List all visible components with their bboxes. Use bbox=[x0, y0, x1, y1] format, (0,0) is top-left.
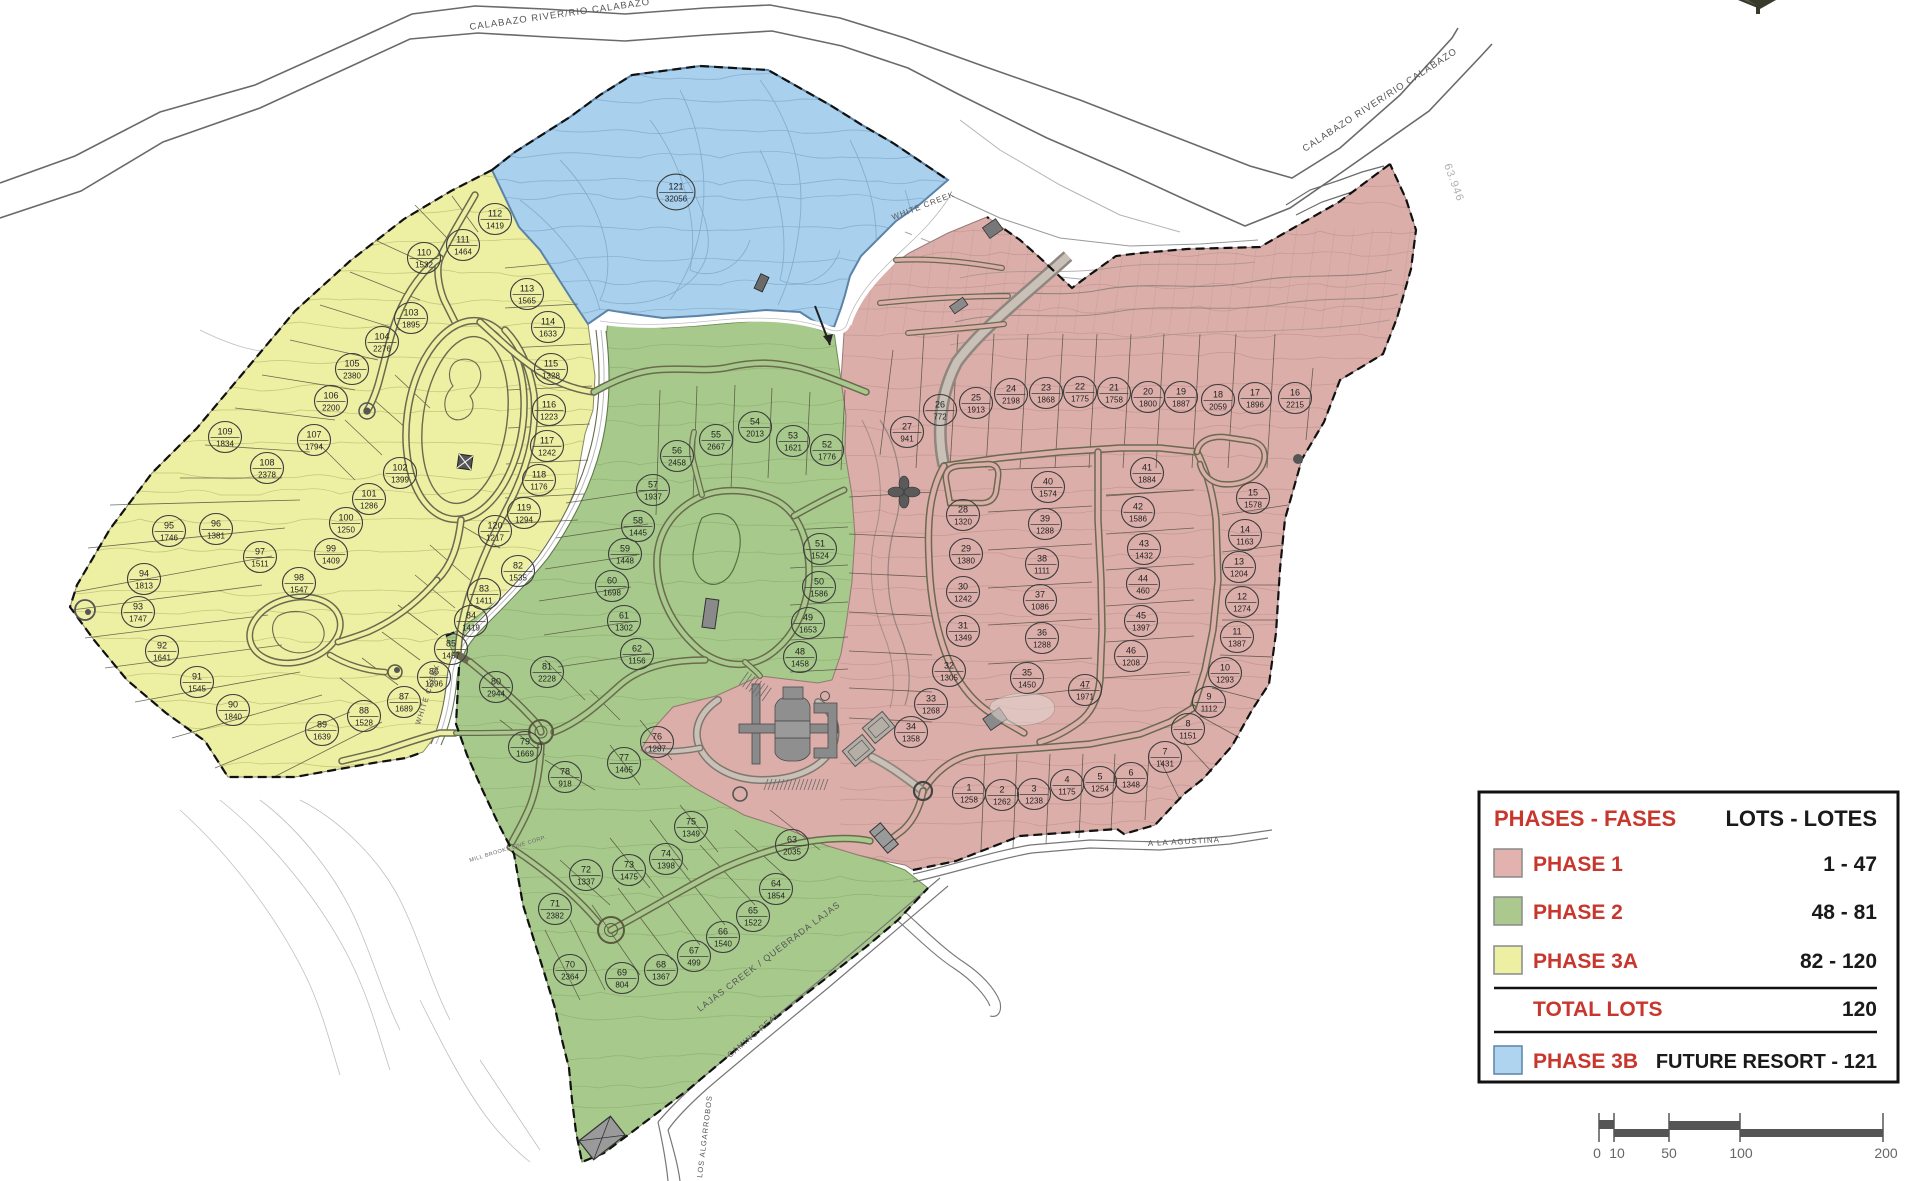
svg-text:14: 14 bbox=[1240, 525, 1250, 535]
svg-text:0: 0 bbox=[1593, 1145, 1601, 1161]
svg-text:2013: 2013 bbox=[746, 430, 764, 439]
svg-text:31: 31 bbox=[958, 621, 968, 631]
svg-text:1511: 1511 bbox=[251, 560, 269, 569]
svg-text:11: 11 bbox=[1232, 627, 1241, 637]
svg-text:1293: 1293 bbox=[1216, 676, 1234, 685]
svg-text:1176: 1176 bbox=[530, 483, 548, 492]
svg-text:2035: 2035 bbox=[783, 848, 801, 857]
svg-text:1868: 1868 bbox=[1037, 396, 1055, 405]
svg-text:34: 34 bbox=[906, 722, 916, 732]
svg-text:113: 113 bbox=[520, 284, 534, 294]
svg-text:772: 772 bbox=[933, 413, 947, 422]
svg-text:1349: 1349 bbox=[682, 830, 700, 839]
svg-text:1223: 1223 bbox=[540, 413, 558, 422]
svg-text:1163: 1163 bbox=[1236, 538, 1254, 547]
svg-text:55: 55 bbox=[711, 430, 721, 440]
svg-text:10: 10 bbox=[1220, 663, 1230, 673]
svg-text:1380: 1380 bbox=[957, 557, 975, 566]
svg-text:1387: 1387 bbox=[1228, 640, 1246, 649]
svg-text:1633: 1633 bbox=[539, 330, 557, 339]
svg-text:1287: 1287 bbox=[648, 745, 666, 754]
svg-text:85: 85 bbox=[446, 639, 456, 649]
svg-text:15: 15 bbox=[1248, 488, 1258, 498]
svg-text:114: 114 bbox=[541, 317, 555, 327]
svg-text:1854: 1854 bbox=[767, 892, 785, 901]
svg-text:1639: 1639 bbox=[313, 733, 331, 742]
svg-text:37: 37 bbox=[1035, 590, 1045, 600]
svg-text:1937: 1937 bbox=[644, 493, 662, 502]
svg-text:1156: 1156 bbox=[628, 657, 646, 666]
svg-text:67: 67 bbox=[689, 946, 699, 956]
svg-text:20: 20 bbox=[1143, 387, 1153, 397]
svg-text:92: 92 bbox=[157, 641, 167, 651]
svg-text:1381: 1381 bbox=[207, 532, 225, 541]
svg-text:111: 111 bbox=[456, 235, 470, 245]
svg-text:43: 43 bbox=[1139, 539, 1149, 549]
svg-text:1399: 1399 bbox=[391, 476, 409, 485]
svg-text:95: 95 bbox=[164, 521, 174, 531]
svg-text:103: 103 bbox=[403, 308, 418, 318]
svg-text:1 - 47: 1 - 47 bbox=[1823, 853, 1877, 876]
svg-text:71: 71 bbox=[550, 899, 560, 909]
svg-text:106: 106 bbox=[323, 391, 338, 401]
svg-text:104: 104 bbox=[374, 332, 389, 342]
svg-text:2200: 2200 bbox=[322, 404, 340, 413]
svg-text:2458: 2458 bbox=[668, 459, 686, 468]
svg-text:1328: 1328 bbox=[542, 372, 560, 381]
svg-text:1: 1 bbox=[966, 783, 971, 793]
svg-text:1288: 1288 bbox=[1033, 641, 1051, 650]
svg-text:1238: 1238 bbox=[1025, 797, 1043, 806]
svg-text:1258: 1258 bbox=[960, 796, 978, 805]
svg-text:1448: 1448 bbox=[616, 557, 634, 566]
svg-text:8: 8 bbox=[1185, 719, 1190, 729]
svg-text:22: 22 bbox=[1075, 382, 1085, 392]
svg-text:1813: 1813 bbox=[135, 582, 153, 591]
svg-text:77: 77 bbox=[619, 753, 629, 763]
svg-text:70: 70 bbox=[565, 960, 575, 970]
svg-text:110: 110 bbox=[417, 248, 431, 258]
svg-text:1112: 1112 bbox=[1201, 705, 1218, 714]
svg-text:2382: 2382 bbox=[546, 912, 564, 921]
svg-text:1840: 1840 bbox=[224, 713, 242, 722]
svg-text:120: 120 bbox=[487, 521, 502, 531]
svg-text:7: 7 bbox=[1162, 747, 1167, 757]
svg-text:82 - 120: 82 - 120 bbox=[1800, 950, 1877, 973]
svg-text:54: 54 bbox=[750, 417, 760, 427]
svg-text:1419: 1419 bbox=[486, 222, 504, 231]
svg-text:74: 74 bbox=[661, 849, 671, 859]
svg-text:117: 117 bbox=[540, 436, 554, 446]
svg-text:PHASES - FASES: PHASES - FASES bbox=[1494, 806, 1676, 831]
svg-text:19: 19 bbox=[1176, 387, 1186, 397]
svg-text:200: 200 bbox=[1874, 1145, 1898, 1161]
svg-text:32: 32 bbox=[944, 661, 954, 671]
svg-text:9: 9 bbox=[1206, 692, 1211, 702]
svg-text:59: 59 bbox=[620, 544, 630, 554]
svg-text:94: 94 bbox=[139, 569, 149, 579]
svg-text:941: 941 bbox=[900, 435, 914, 444]
svg-text:2: 2 bbox=[999, 785, 1004, 795]
svg-text:1411: 1411 bbox=[475, 597, 493, 606]
svg-text:1397: 1397 bbox=[1132, 624, 1150, 633]
svg-text:1669: 1669 bbox=[516, 750, 534, 759]
svg-text:18: 18 bbox=[1213, 390, 1223, 400]
svg-text:90: 90 bbox=[228, 700, 238, 710]
svg-text:1450: 1450 bbox=[1018, 681, 1036, 690]
svg-text:460: 460 bbox=[1136, 587, 1150, 596]
svg-text:75: 75 bbox=[686, 817, 696, 827]
svg-text:1528: 1528 bbox=[355, 719, 373, 728]
svg-text:16: 16 bbox=[1290, 388, 1300, 398]
svg-text:99: 99 bbox=[326, 544, 336, 554]
svg-text:PHASE 3B: PHASE 3B bbox=[1533, 1050, 1638, 1073]
svg-text:50: 50 bbox=[814, 577, 824, 587]
svg-text:24: 24 bbox=[1006, 384, 1016, 394]
svg-text:1151: 1151 bbox=[1179, 732, 1197, 741]
svg-text:120: 120 bbox=[1842, 998, 1877, 1021]
svg-text:93: 93 bbox=[133, 602, 143, 612]
svg-text:84: 84 bbox=[466, 611, 476, 621]
svg-text:4: 4 bbox=[1064, 775, 1069, 785]
svg-text:918: 918 bbox=[558, 780, 572, 789]
svg-text:1431: 1431 bbox=[1156, 760, 1174, 769]
svg-text:56: 56 bbox=[672, 446, 682, 456]
svg-text:47: 47 bbox=[1080, 680, 1090, 690]
svg-text:98: 98 bbox=[294, 573, 304, 583]
svg-text:1758: 1758 bbox=[1105, 396, 1123, 405]
svg-text:6: 6 bbox=[1128, 768, 1133, 778]
svg-text:107: 107 bbox=[306, 430, 321, 440]
svg-text:1794: 1794 bbox=[305, 443, 323, 452]
svg-text:100: 100 bbox=[338, 513, 353, 523]
svg-text:81: 81 bbox=[542, 662, 552, 672]
svg-text:1111: 1111 bbox=[1034, 567, 1051, 576]
svg-text:1305: 1305 bbox=[940, 674, 958, 683]
svg-text:53: 53 bbox=[788, 431, 798, 441]
svg-text:121: 121 bbox=[668, 182, 683, 192]
svg-text:1242: 1242 bbox=[538, 449, 556, 458]
svg-text:1409: 1409 bbox=[322, 557, 340, 566]
svg-text:PHASE 2: PHASE 2 bbox=[1533, 901, 1623, 924]
svg-text:73: 73 bbox=[624, 860, 634, 870]
svg-text:65: 65 bbox=[748, 906, 758, 916]
svg-text:116: 116 bbox=[542, 400, 556, 410]
svg-text:83: 83 bbox=[479, 584, 489, 594]
svg-text:1800: 1800 bbox=[1139, 400, 1157, 409]
svg-text:LOTS - LOTES: LOTS - LOTES bbox=[1725, 806, 1877, 831]
svg-text:1524: 1524 bbox=[811, 552, 829, 561]
svg-text:30: 30 bbox=[958, 582, 968, 592]
svg-text:1217: 1217 bbox=[486, 534, 504, 543]
svg-text:1445: 1445 bbox=[629, 529, 647, 538]
svg-text:36: 36 bbox=[1037, 628, 1047, 638]
svg-text:17: 17 bbox=[1250, 388, 1260, 398]
svg-text:64: 64 bbox=[771, 879, 781, 889]
svg-text:88: 88 bbox=[359, 706, 369, 716]
svg-text:2380: 2380 bbox=[343, 372, 361, 381]
svg-text:1349: 1349 bbox=[954, 634, 972, 643]
svg-text:40: 40 bbox=[1043, 477, 1053, 487]
svg-text:1547: 1547 bbox=[290, 586, 308, 595]
svg-text:1204: 1204 bbox=[1230, 570, 1248, 579]
svg-text:12: 12 bbox=[1237, 592, 1247, 602]
svg-text:1320: 1320 bbox=[954, 518, 972, 527]
svg-text:29: 29 bbox=[961, 544, 971, 554]
svg-text:49: 49 bbox=[803, 613, 813, 623]
svg-text:1464: 1464 bbox=[454, 248, 472, 257]
svg-text:13: 13 bbox=[1234, 557, 1244, 567]
svg-text:97: 97 bbox=[255, 547, 265, 557]
svg-text:1254: 1254 bbox=[1091, 785, 1109, 794]
svg-text:118: 118 bbox=[532, 470, 546, 480]
svg-text:1586: 1586 bbox=[810, 590, 828, 599]
svg-text:1262: 1262 bbox=[993, 798, 1011, 807]
svg-text:44: 44 bbox=[1138, 574, 1148, 584]
svg-text:33: 33 bbox=[926, 694, 936, 704]
svg-text:51: 51 bbox=[815, 539, 825, 549]
svg-text:1432: 1432 bbox=[1135, 552, 1153, 561]
svg-text:1288: 1288 bbox=[1036, 527, 1054, 536]
svg-text:1540: 1540 bbox=[714, 940, 732, 949]
svg-text:1775: 1775 bbox=[1071, 395, 1089, 404]
svg-text:1348: 1348 bbox=[1122, 781, 1140, 790]
svg-text:1895: 1895 bbox=[402, 321, 420, 330]
svg-text:1834: 1834 bbox=[216, 440, 234, 449]
svg-text:115: 115 bbox=[544, 359, 558, 369]
svg-text:499: 499 bbox=[687, 959, 701, 968]
svg-text:2378: 2378 bbox=[258, 471, 276, 480]
svg-text:2276: 2276 bbox=[373, 345, 391, 354]
svg-text:42: 42 bbox=[1133, 502, 1143, 512]
svg-text:68: 68 bbox=[656, 960, 666, 970]
svg-text:5: 5 bbox=[1097, 772, 1102, 782]
svg-text:21: 21 bbox=[1109, 383, 1119, 393]
svg-text:89: 89 bbox=[317, 720, 327, 730]
svg-text:119: 119 bbox=[517, 503, 531, 513]
svg-text:41: 41 bbox=[1142, 463, 1152, 473]
svg-text:1337: 1337 bbox=[577, 878, 595, 887]
svg-text:105: 105 bbox=[344, 359, 359, 369]
svg-text:23: 23 bbox=[1041, 383, 1051, 393]
svg-text:63: 63 bbox=[787, 835, 797, 845]
svg-text:1545: 1545 bbox=[188, 685, 206, 694]
svg-text:100: 100 bbox=[1729, 1145, 1753, 1161]
svg-text:1208: 1208 bbox=[1122, 659, 1140, 668]
svg-text:62: 62 bbox=[632, 644, 642, 654]
svg-text:1689: 1689 bbox=[395, 705, 413, 714]
svg-text:26: 26 bbox=[935, 400, 945, 410]
svg-text:PHASE 3A: PHASE 3A bbox=[1533, 950, 1638, 973]
svg-text:TOTAL LOTS: TOTAL LOTS bbox=[1533, 998, 1663, 1021]
svg-text:1367: 1367 bbox=[652, 973, 670, 982]
svg-text:1522: 1522 bbox=[744, 919, 762, 928]
svg-text:804: 804 bbox=[615, 981, 629, 990]
svg-text:1621: 1621 bbox=[784, 444, 802, 453]
svg-text:1274: 1274 bbox=[1233, 605, 1251, 614]
svg-text:10: 10 bbox=[1609, 1145, 1625, 1161]
svg-text:2198: 2198 bbox=[1002, 397, 1020, 406]
svg-text:38: 38 bbox=[1037, 554, 1047, 564]
svg-text:1398: 1398 bbox=[657, 862, 675, 871]
svg-text:1653: 1653 bbox=[799, 626, 817, 635]
svg-text:28: 28 bbox=[958, 505, 968, 515]
svg-text:58: 58 bbox=[633, 516, 643, 526]
svg-text:60: 60 bbox=[607, 576, 617, 586]
svg-text:46: 46 bbox=[1126, 646, 1136, 656]
svg-text:1913: 1913 bbox=[967, 406, 985, 415]
svg-text:1532: 1532 bbox=[415, 261, 433, 270]
svg-text:2215: 2215 bbox=[1286, 401, 1304, 410]
svg-text:25: 25 bbox=[971, 393, 981, 403]
svg-text:82: 82 bbox=[513, 561, 523, 571]
svg-text:1535: 1535 bbox=[509, 574, 527, 583]
svg-text:91: 91 bbox=[192, 672, 202, 682]
svg-text:87: 87 bbox=[399, 692, 409, 702]
svg-text:1475: 1475 bbox=[620, 873, 638, 882]
svg-text:2944: 2944 bbox=[487, 690, 505, 699]
svg-text:109: 109 bbox=[217, 427, 232, 437]
svg-text:45: 45 bbox=[1136, 611, 1146, 621]
svg-text:1268: 1268 bbox=[922, 707, 940, 716]
svg-text:1286: 1286 bbox=[360, 502, 378, 511]
svg-text:2228: 2228 bbox=[538, 675, 556, 684]
svg-text:76: 76 bbox=[652, 732, 662, 742]
svg-text:32056: 32056 bbox=[665, 195, 688, 204]
svg-text:1586: 1586 bbox=[1129, 515, 1147, 524]
svg-text:1574: 1574 bbox=[1039, 490, 1057, 499]
svg-text:112: 112 bbox=[488, 209, 502, 219]
svg-text:101: 101 bbox=[361, 489, 376, 499]
svg-text:1641: 1641 bbox=[153, 654, 171, 663]
svg-text:78: 78 bbox=[560, 767, 570, 777]
svg-text:1887: 1887 bbox=[1172, 400, 1190, 409]
svg-text:3: 3 bbox=[1031, 784, 1036, 794]
svg-text:1565: 1565 bbox=[518, 297, 536, 306]
svg-text:1457: 1457 bbox=[442, 652, 460, 661]
svg-text:79: 79 bbox=[520, 737, 530, 747]
svg-text:1465: 1465 bbox=[615, 766, 633, 775]
svg-text:1698: 1698 bbox=[603, 589, 621, 598]
svg-text:1358: 1358 bbox=[902, 735, 920, 744]
svg-text:1747: 1747 bbox=[129, 615, 147, 624]
svg-text:1250: 1250 bbox=[337, 526, 355, 535]
svg-text:48: 48 bbox=[795, 647, 805, 657]
svg-text:1458: 1458 bbox=[791, 660, 809, 669]
svg-text:57: 57 bbox=[648, 480, 658, 490]
svg-text:1578: 1578 bbox=[1244, 501, 1262, 510]
svg-text:1776: 1776 bbox=[818, 453, 836, 462]
svg-text:1175: 1175 bbox=[1058, 788, 1076, 797]
svg-text:1896: 1896 bbox=[1246, 401, 1264, 410]
svg-text:52: 52 bbox=[822, 440, 832, 450]
svg-text:2667: 2667 bbox=[707, 443, 725, 452]
svg-text:PHASE 1: PHASE 1 bbox=[1533, 853, 1623, 876]
svg-text:1971: 1971 bbox=[1076, 693, 1094, 702]
svg-text:50: 50 bbox=[1661, 1145, 1677, 1161]
svg-text:1746: 1746 bbox=[160, 534, 178, 543]
svg-text:66: 66 bbox=[718, 927, 728, 937]
svg-text:1302: 1302 bbox=[615, 624, 633, 633]
svg-text:72: 72 bbox=[581, 865, 591, 875]
svg-text:FUTURE RESORT - 121: FUTURE RESORT - 121 bbox=[1656, 1051, 1877, 1073]
svg-text:69: 69 bbox=[617, 968, 627, 978]
svg-text:1884: 1884 bbox=[1138, 476, 1156, 485]
svg-text:80: 80 bbox=[491, 677, 501, 687]
svg-text:35: 35 bbox=[1022, 668, 1032, 678]
svg-text:2059: 2059 bbox=[1209, 403, 1227, 412]
svg-text:1086: 1086 bbox=[1031, 603, 1049, 612]
svg-text:102: 102 bbox=[392, 463, 407, 473]
svg-text:39: 39 bbox=[1040, 514, 1050, 524]
svg-text:2364: 2364 bbox=[561, 973, 579, 982]
svg-text:27: 27 bbox=[902, 422, 912, 432]
svg-text:96: 96 bbox=[211, 519, 221, 529]
svg-text:61: 61 bbox=[619, 611, 629, 621]
svg-text:1242: 1242 bbox=[954, 595, 972, 604]
svg-text:1294: 1294 bbox=[515, 516, 533, 525]
svg-text:108: 108 bbox=[259, 458, 274, 468]
svg-text:1419: 1419 bbox=[462, 624, 480, 633]
svg-text:48 - 81: 48 - 81 bbox=[1812, 901, 1878, 924]
